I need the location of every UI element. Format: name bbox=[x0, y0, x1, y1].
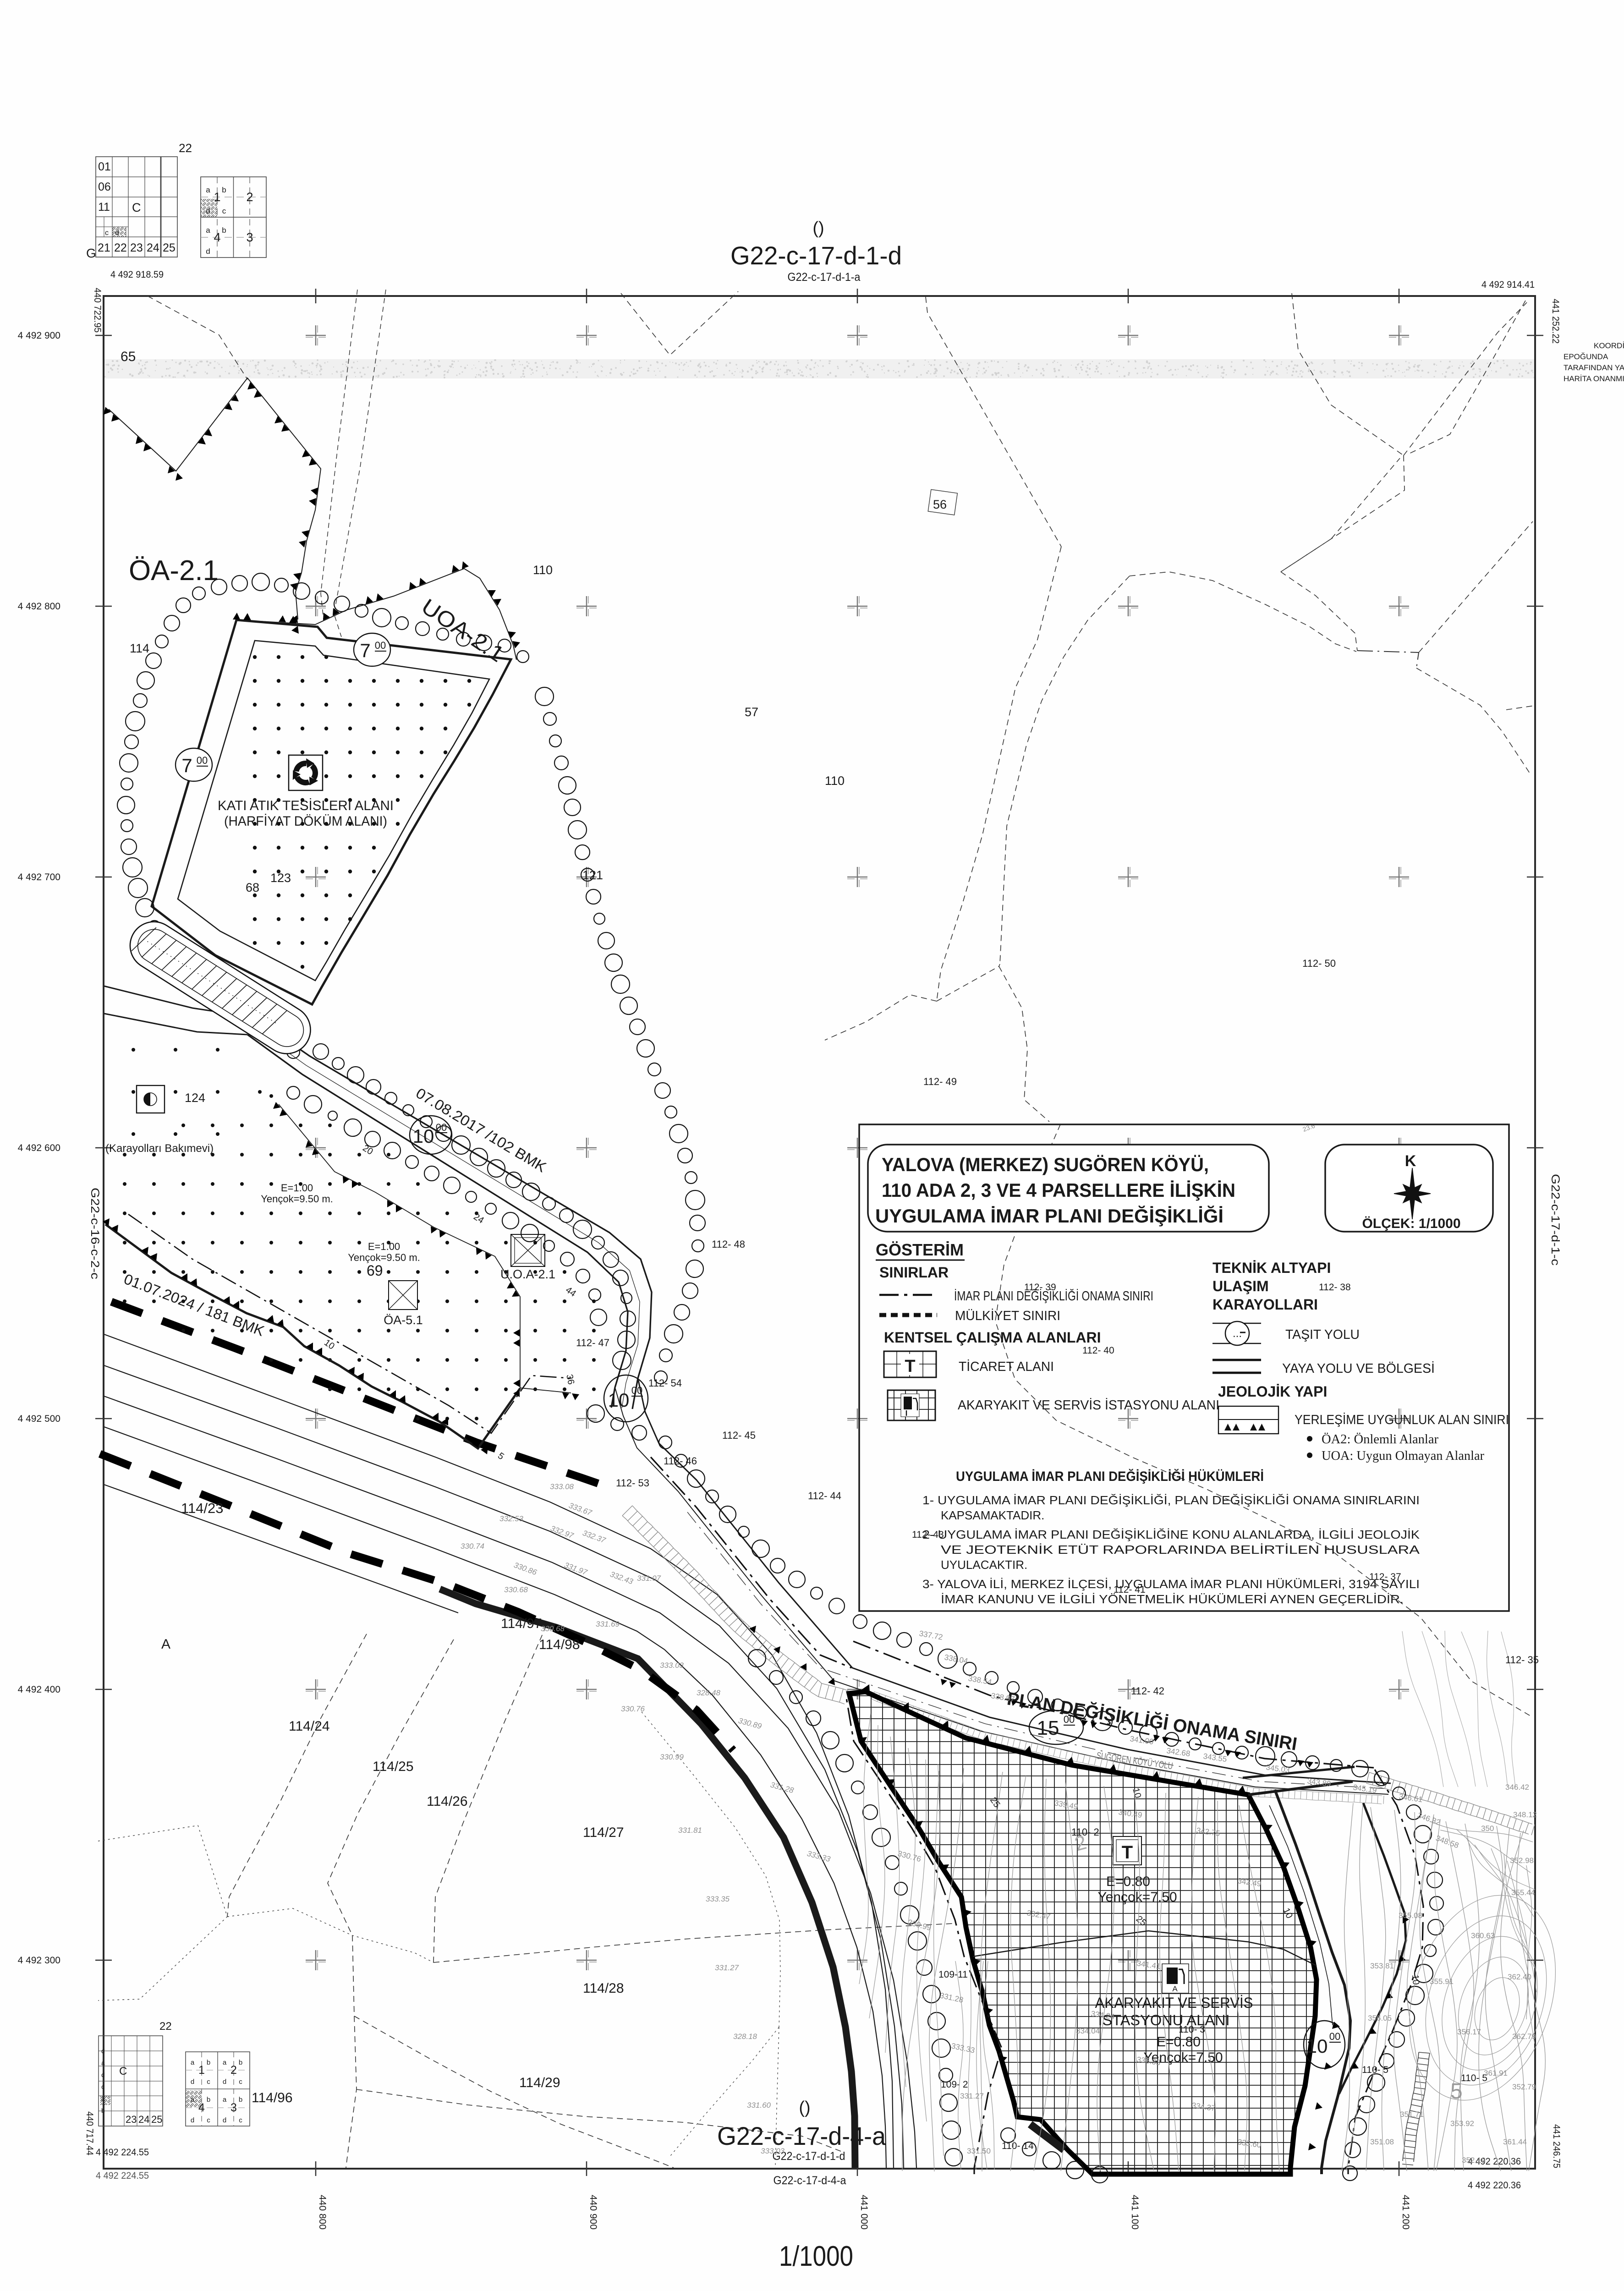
svg-text:112- 48: 112- 48 bbox=[712, 1239, 745, 1250]
svg-text:110: 110 bbox=[533, 563, 553, 577]
svg-text:E=0.80: E=0.80 bbox=[1106, 1874, 1150, 1889]
svg-text:EPOĞUNDA: EPOĞUNDA bbox=[1564, 352, 1608, 361]
svg-text:4 492 300: 4 492 300 bbox=[18, 1955, 60, 1966]
svg-text:TARAFINDAN YAPILAN: TARAFINDAN YAPILAN bbox=[1564, 363, 1624, 372]
svg-text:112- 38: 112- 38 bbox=[1319, 1282, 1351, 1293]
svg-text:1- UYGULAMA İMAR PLANI DEĞİŞİK: 1- UYGULAMA İMAR PLANI DEĞİŞİKLİĞİ, PLAN… bbox=[922, 1493, 1420, 1507]
svg-text:121: 121 bbox=[582, 868, 603, 882]
svg-text:112- 43: 112- 43 bbox=[912, 1529, 944, 1540]
svg-text:114/97: 114/97 bbox=[501, 1616, 542, 1631]
svg-text:3: 3 bbox=[230, 2101, 237, 2114]
svg-text:351.08: 351.08 bbox=[1370, 2138, 1394, 2146]
svg-text:UYGULAMA İMAR PLANI DEĞİŞİKLİĞ: UYGULAMA İMAR PLANI DEĞİŞİKLİĞİ bbox=[875, 1205, 1223, 1227]
svg-text:22: 22 bbox=[159, 2020, 172, 2033]
svg-text:d: d bbox=[101, 2071, 105, 2078]
svg-text:00: 00 bbox=[436, 1122, 447, 1133]
svg-text:d: d bbox=[206, 207, 210, 215]
svg-text:352.98: 352.98 bbox=[1510, 1856, 1534, 1865]
svg-text:c: c bbox=[105, 229, 109, 237]
svg-text:112- 54: 112- 54 bbox=[648, 1377, 682, 1389]
svg-text:362.79: 362.79 bbox=[1512, 2032, 1536, 2041]
svg-text:4 492 220.36: 4 492 220.36 bbox=[1468, 2180, 1521, 2191]
svg-text:b: b bbox=[207, 2059, 210, 2066]
svg-text:441 000: 441 000 bbox=[859, 2195, 869, 2230]
svg-text:110- 3: 110- 3 bbox=[1179, 2024, 1205, 2035]
svg-text:114/26: 114/26 bbox=[427, 1794, 468, 1809]
svg-text:114/29: 114/29 bbox=[519, 2075, 560, 2090]
svg-text:2: 2 bbox=[230, 2064, 237, 2077]
svg-text:ÖLÇEK: 1/1000: ÖLÇEK: 1/1000 bbox=[1362, 1216, 1460, 1231]
svg-text:440 722.95: 440 722.95 bbox=[92, 288, 103, 333]
svg-text:G22-c-17-d-4-a: G22-c-17-d-4-a bbox=[774, 2174, 846, 2187]
svg-text:331.27: 331.27 bbox=[715, 1963, 739, 1972]
svg-text:332.53: 332.53 bbox=[499, 1514, 524, 1523]
svg-text:SINIRLAR: SINIRLAR bbox=[879, 1264, 949, 1281]
svg-text:3: 3 bbox=[246, 230, 253, 244]
svg-text:10: 10 bbox=[413, 1125, 434, 1147]
svg-text:355.44: 355.44 bbox=[1511, 1888, 1535, 1897]
svg-text:331.27: 331.27 bbox=[960, 2092, 984, 2100]
svg-text:KATI ATIK TESİSLERİ ALANI: KATI ATIK TESİSLERİ ALANI bbox=[218, 798, 394, 813]
svg-text:G22-c-17-d-1-c: G22-c-17-d-1-c bbox=[1549, 1174, 1562, 1266]
svg-text:2- UYGULAMA İMAR PLANI DEĞİŞİK: 2- UYGULAMA İMAR PLANI DEĞİŞİKLİĞİNE KON… bbox=[922, 1528, 1420, 1541]
svg-text:İMAR KANUNU VE İLGİLİ YÖNETMEL: İMAR KANUNU VE İLGİLİ YÖNETMELİK HÜKÜMLE… bbox=[941, 1592, 1404, 1606]
svg-text:ÖA2: Önlemli Alanlar: ÖA2: Önlemli Alanlar bbox=[1322, 1432, 1438, 1447]
svg-text:a: a bbox=[191, 2096, 195, 2104]
svg-text:10: 10 bbox=[1306, 2035, 1328, 2057]
svg-text:330.68: 330.68 bbox=[504, 1585, 528, 1594]
svg-text:K: K bbox=[1405, 1152, 1416, 1170]
svg-text:(): () bbox=[812, 219, 824, 238]
svg-text:C: C bbox=[132, 201, 141, 214]
svg-text:114/96: 114/96 bbox=[252, 2090, 293, 2105]
svg-text:GÖSTERİM: GÖSTERİM bbox=[876, 1240, 964, 1259]
svg-text:AKARYAKIT VE SERVİS: AKARYAKIT VE SERVİS bbox=[1095, 1995, 1253, 2011]
svg-text:112- 44: 112- 44 bbox=[808, 1490, 841, 1502]
svg-text:441 246.75: 441 246.75 bbox=[1551, 2124, 1562, 2168]
svg-text:330.68: 330.68 bbox=[541, 1624, 565, 1633]
svg-text:328.48: 328.48 bbox=[697, 1688, 721, 1697]
svg-text:109-11: 109-11 bbox=[938, 1969, 968, 1980]
svg-text:MÜLKİYET SINIRI: MÜLKİYET SINIRI bbox=[955, 1308, 1060, 1323]
svg-text:7: 7 bbox=[181, 755, 192, 776]
svg-text:23: 23 bbox=[126, 2114, 137, 2125]
svg-text:333.35: 333.35 bbox=[706, 1895, 730, 1903]
svg-text:VE JEOTEKNİK ETÜT RAP: VE JEOTEKNİK ETÜT RAPORLARINDA BELİRTİLE… bbox=[941, 1543, 1420, 1557]
svg-text:23: 23 bbox=[130, 241, 143, 254]
svg-text:d: d bbox=[223, 2116, 226, 2124]
svg-text:E=0.80: E=0.80 bbox=[1157, 2034, 1201, 2050]
svg-text:Yençok=9.50 m.: Yençok=9.50 m. bbox=[348, 1252, 420, 1263]
svg-text:d: d bbox=[191, 2116, 194, 2124]
svg-text:a: a bbox=[206, 226, 210, 235]
svg-text:112- 53: 112- 53 bbox=[616, 1477, 649, 1489]
svg-text:114/25: 114/25 bbox=[373, 1759, 414, 1774]
svg-text:114/98: 114/98 bbox=[539, 1637, 580, 1652]
svg-text:346.42: 346.42 bbox=[1505, 1783, 1529, 1792]
svg-text:ÖA-2.1: ÖA-2.1 bbox=[129, 555, 219, 586]
svg-text:1/1000: 1/1000 bbox=[779, 2241, 853, 2272]
svg-text:331.60: 331.60 bbox=[747, 2101, 771, 2110]
svg-text:d: d bbox=[115, 229, 119, 237]
svg-text:00: 00 bbox=[375, 640, 386, 651]
svg-text:353.92: 353.92 bbox=[1450, 2119, 1474, 2128]
svg-text:362.40: 362.40 bbox=[1508, 1973, 1531, 1981]
svg-text:06: 06 bbox=[98, 181, 111, 193]
svg-text:21: 21 bbox=[98, 241, 110, 254]
svg-text:T: T bbox=[905, 1357, 915, 1376]
svg-text:112- 49: 112- 49 bbox=[923, 1076, 957, 1087]
svg-text:b: b bbox=[222, 226, 226, 235]
svg-text:440 800: 440 800 bbox=[317, 2195, 328, 2230]
svg-text:A: A bbox=[1172, 1984, 1178, 1993]
svg-text:355.91: 355.91 bbox=[1430, 1977, 1454, 1986]
svg-text:TAŞIT YOLU: TAŞIT YOLU bbox=[1285, 1327, 1360, 1342]
svg-text:b: b bbox=[239, 2096, 242, 2104]
svg-text:00: 00 bbox=[197, 755, 208, 766]
svg-text:356.17: 356.17 bbox=[1457, 2028, 1481, 2036]
svg-text:d: d bbox=[191, 2078, 194, 2086]
svg-text:114/27: 114/27 bbox=[583, 1825, 624, 1840]
svg-text:UYULACAKTIR.: UYULACAKTIR. bbox=[941, 1558, 1027, 1572]
svg-text:4 492 700: 4 492 700 bbox=[18, 872, 60, 882]
svg-text:a: a bbox=[223, 2096, 227, 2104]
svg-text:11: 11 bbox=[98, 201, 110, 214]
svg-text:U.O.A-2.1: U.O.A-2.1 bbox=[500, 1267, 555, 1281]
svg-text:G22-c-16-c-2-c: G22-c-16-c-2-c bbox=[88, 1188, 101, 1279]
svg-text:441 200: 441 200 bbox=[1400, 2195, 1411, 2230]
svg-text:112- 37: 112- 37 bbox=[1369, 1572, 1401, 1582]
svg-text:ÖA-5.1: ÖA-5.1 bbox=[384, 1313, 423, 1327]
svg-text:d: d bbox=[206, 247, 210, 256]
svg-text:57: 57 bbox=[745, 705, 758, 719]
svg-text:c: c bbox=[207, 2078, 210, 2086]
svg-text:c: c bbox=[207, 2116, 210, 2124]
svg-text:G22-c-17-d-1-d: G22-c-17-d-1-d bbox=[730, 241, 902, 270]
svg-text:YALOVA (MERKEZ) SUGÖREN KÖYÜ,: YALOVA (MERKEZ) SUGÖREN KÖYÜ, bbox=[882, 1154, 1209, 1175]
svg-text:331.07: 331.07 bbox=[637, 1574, 661, 1583]
svg-text:4 492 918.59: 4 492 918.59 bbox=[110, 269, 164, 280]
svg-text:361.91: 361.91 bbox=[1484, 2069, 1508, 2077]
svg-text:24: 24 bbox=[147, 241, 159, 254]
svg-text:4 492 600: 4 492 600 bbox=[18, 1143, 60, 1153]
svg-text:352.79: 352.79 bbox=[1512, 2083, 1536, 2091]
svg-text:348.12: 348.12 bbox=[1513, 1810, 1537, 1819]
svg-text:TİCARET ALANI: TİCARET ALANI bbox=[959, 1359, 1054, 1374]
svg-text:E=1.00: E=1.00 bbox=[281, 1182, 313, 1194]
svg-text:a: a bbox=[101, 2059, 105, 2066]
svg-text:YERLEŞİME UYGUNLUK ALAN SINIRI: YERLEŞİME UYGUNLUK ALAN SINIRI bbox=[1295, 1412, 1509, 1427]
svg-text:1: 1 bbox=[214, 190, 220, 204]
svg-text:d: d bbox=[223, 2078, 226, 2086]
svg-text:110- 14: 110- 14 bbox=[1002, 2141, 1034, 2151]
svg-text:4 492 800: 4 492 800 bbox=[18, 601, 60, 612]
svg-text:(): () bbox=[799, 2098, 810, 2117]
svg-text:351.71: 351.71 bbox=[1400, 2110, 1424, 2119]
svg-text:330.74: 330.74 bbox=[461, 1542, 484, 1551]
svg-text:114/23: 114/23 bbox=[181, 1500, 224, 1516]
svg-text:b: b bbox=[101, 2107, 105, 2114]
svg-text:441 252.22: 441 252.22 bbox=[1550, 299, 1561, 344]
svg-text:124: 124 bbox=[185, 1091, 205, 1105]
svg-text:G22-c-17-d-1-a: G22-c-17-d-1-a bbox=[788, 271, 861, 284]
svg-text:4: 4 bbox=[214, 230, 220, 244]
svg-text:22: 22 bbox=[179, 141, 192, 155]
svg-text:331.81: 331.81 bbox=[678, 1826, 702, 1835]
svg-text:15: 15 bbox=[1037, 1717, 1059, 1739]
svg-text:112- 42: 112- 42 bbox=[1131, 1685, 1164, 1697]
svg-text:333.03: 333.03 bbox=[660, 1661, 684, 1670]
svg-text:Yençok=9.50 m.: Yençok=9.50 m. bbox=[261, 1193, 333, 1205]
svg-text:C: C bbox=[119, 2065, 127, 2077]
svg-text:YAYA YOLU VE BÖLGESİ: YAYA YOLU VE BÖLGESİ bbox=[1282, 1361, 1435, 1376]
svg-text:A: A bbox=[161, 1637, 170, 1652]
svg-text:114/28: 114/28 bbox=[583, 1981, 624, 1996]
svg-text:(Karayolları Bakımevi): (Karayolları Bakımevi) bbox=[105, 1142, 214, 1155]
svg-text:110: 110 bbox=[825, 774, 845, 788]
svg-text:b: b bbox=[222, 186, 226, 194]
svg-text:330.76: 330.76 bbox=[621, 1705, 645, 1713]
svg-text:4 492 914.41: 4 492 914.41 bbox=[1481, 280, 1535, 290]
svg-text:110 ADA 2, 3 VE 4 PARSELLERE İ: 110 ADA 2, 3 VE 4 PARSELLERE İLİŞKİN bbox=[882, 1179, 1235, 1201]
svg-text:112- 47: 112- 47 bbox=[576, 1337, 609, 1348]
svg-text:441 100: 441 100 bbox=[1130, 2195, 1140, 2230]
svg-text:a: a bbox=[223, 2059, 227, 2066]
svg-text:350: 350 bbox=[1481, 1824, 1494, 1833]
svg-text:4 492 400: 4 492 400 bbox=[18, 1684, 60, 1695]
svg-text:355.08: 355.08 bbox=[1399, 1911, 1422, 1920]
svg-text:25: 25 bbox=[163, 241, 176, 254]
svg-text:d: d bbox=[101, 2047, 105, 2055]
svg-text:c: c bbox=[239, 2078, 242, 2086]
svg-text:112- 41: 112- 41 bbox=[1114, 1584, 1146, 1595]
svg-text:Yençok=7.50: Yençok=7.50 bbox=[1097, 1890, 1177, 1905]
svg-text:328.18: 328.18 bbox=[733, 2032, 757, 2041]
svg-text:KOORDİNAT: KOORDİNAT bbox=[1594, 341, 1624, 350]
svg-text:353.81: 353.81 bbox=[1370, 1962, 1394, 1970]
svg-text:4 492 224.55: 4 492 224.55 bbox=[96, 2170, 149, 2181]
svg-text:01: 01 bbox=[98, 160, 111, 173]
svg-text:JEOLOJİK YAPI: JEOLOJİK YAPI bbox=[1218, 1383, 1327, 1400]
svg-text:a: a bbox=[206, 186, 210, 194]
svg-text:25: 25 bbox=[151, 2114, 162, 2125]
svg-text:ULAŞIM: ULAŞIM bbox=[1213, 1278, 1269, 1294]
svg-text:b: b bbox=[239, 2059, 242, 2066]
svg-text:2: 2 bbox=[246, 190, 253, 204]
svg-text:22: 22 bbox=[114, 241, 127, 254]
svg-text:112- 40: 112- 40 bbox=[1082, 1345, 1114, 1356]
svg-text:UOA: Uygun Olmayan Alanlar: UOA: Uygun Olmayan Alanlar bbox=[1322, 1448, 1484, 1463]
svg-text:KAPSAMAKTADIR.: KAPSAMAKTADIR. bbox=[941, 1508, 1044, 1522]
svg-text:109- 2: 109- 2 bbox=[941, 2079, 968, 2090]
svg-text:c: c bbox=[222, 207, 226, 215]
svg-text:UYGULAMA İMAR PLANI DEĞİŞİKLİĞ: UYGULAMA İMAR PLANI DEĞİŞİKLİĞİ HÜKÜMLER… bbox=[956, 1469, 1264, 1484]
svg-text:68: 68 bbox=[246, 881, 259, 894]
svg-text:112- 35: 112- 35 bbox=[1505, 1654, 1539, 1666]
svg-text:352.19: 352.19 bbox=[1462, 2156, 1486, 2165]
svg-text:110- 5: 110- 5 bbox=[1362, 2065, 1388, 2075]
svg-text:b: b bbox=[207, 2096, 210, 2104]
svg-text:440 900: 440 900 bbox=[588, 2195, 598, 2230]
svg-text:10: 10 bbox=[1410, 1974, 1421, 1985]
svg-text:4 492 500: 4 492 500 bbox=[18, 1414, 60, 1424]
svg-text:KARAYOLLARI: KARAYOLLARI bbox=[1213, 1296, 1318, 1313]
svg-text:1: 1 bbox=[198, 2064, 205, 2077]
svg-text:4 492 224.55: 4 492 224.55 bbox=[96, 2147, 149, 2158]
svg-text:69: 69 bbox=[367, 1262, 383, 1279]
svg-text:(HARFİYAT DÖKÜM ALANI): (HARFİYAT DÖKÜM ALANI) bbox=[224, 814, 387, 829]
svg-text:00: 00 bbox=[1329, 2031, 1340, 2042]
svg-text:334.04: 334.04 bbox=[1076, 2027, 1100, 2035]
svg-text:114: 114 bbox=[130, 641, 149, 655]
svg-text:361.44: 361.44 bbox=[1503, 2138, 1527, 2146]
svg-text:c: c bbox=[239, 2116, 242, 2124]
svg-text:112- 39: 112- 39 bbox=[1024, 1282, 1056, 1293]
svg-text:331.50: 331.50 bbox=[967, 2147, 991, 2155]
svg-text:HARİTA ONANMIŞTIR.: HARİTA ONANMIŞTIR. bbox=[1564, 374, 1624, 383]
svg-text:00: 00 bbox=[1064, 1714, 1075, 1725]
svg-text:4 492 900: 4 492 900 bbox=[18, 330, 60, 341]
svg-text:333.08: 333.08 bbox=[550, 1482, 574, 1491]
svg-text:65: 65 bbox=[121, 349, 136, 364]
svg-text:356.05: 356.05 bbox=[1368, 2014, 1392, 2022]
svg-text:440 717.44: 440 717.44 bbox=[84, 2111, 95, 2155]
svg-text:a: a bbox=[191, 2059, 195, 2066]
svg-text:KENTSEL ÇALIŞMA ALANLARI: KENTSEL ÇALIŞMA ALANLARI bbox=[884, 1329, 1101, 1346]
svg-text:112- 45: 112- 45 bbox=[722, 1430, 756, 1441]
svg-text:c: c bbox=[101, 2083, 104, 2090]
svg-text:331.69: 331.69 bbox=[596, 1620, 620, 1628]
svg-text:24: 24 bbox=[138, 2114, 149, 2125]
svg-text:333.03: 333.03 bbox=[761, 2147, 785, 2155]
svg-text:TEKNİK ALTYAPI: TEKNİK ALTYAPI bbox=[1213, 1260, 1331, 1276]
svg-text:56: 56 bbox=[933, 498, 947, 511]
svg-text:112- 50: 112- 50 bbox=[1302, 958, 1336, 969]
svg-text:330.99: 330.99 bbox=[660, 1753, 684, 1761]
svg-text:...: ... bbox=[1233, 1327, 1242, 1340]
svg-text:36: 36 bbox=[564, 1373, 576, 1385]
svg-text:3- YALOVA İLİ, MERKEZ İLÇESİ,: 3- YALOVA İLİ, MERKEZ İLÇESİ, UYGULAMA İ… bbox=[922, 1577, 1420, 1591]
svg-text:AKARYAKIT VE SERVİS İSTASYONU: AKARYAKIT VE SERVİS İSTASYONU ALANI bbox=[958, 1398, 1219, 1413]
svg-text:112- 46: 112- 46 bbox=[664, 1455, 697, 1467]
svg-text:4: 4 bbox=[198, 2101, 205, 2114]
svg-text:G: G bbox=[86, 246, 96, 260]
svg-text:123: 123 bbox=[270, 871, 291, 885]
svg-text:7: 7 bbox=[360, 640, 370, 661]
svg-text:T: T bbox=[1122, 1842, 1133, 1863]
svg-text:E=1.00: E=1.00 bbox=[368, 1241, 400, 1252]
svg-text:114/24: 114/24 bbox=[289, 1719, 330, 1734]
svg-text:360.63: 360.63 bbox=[1471, 1931, 1495, 1940]
